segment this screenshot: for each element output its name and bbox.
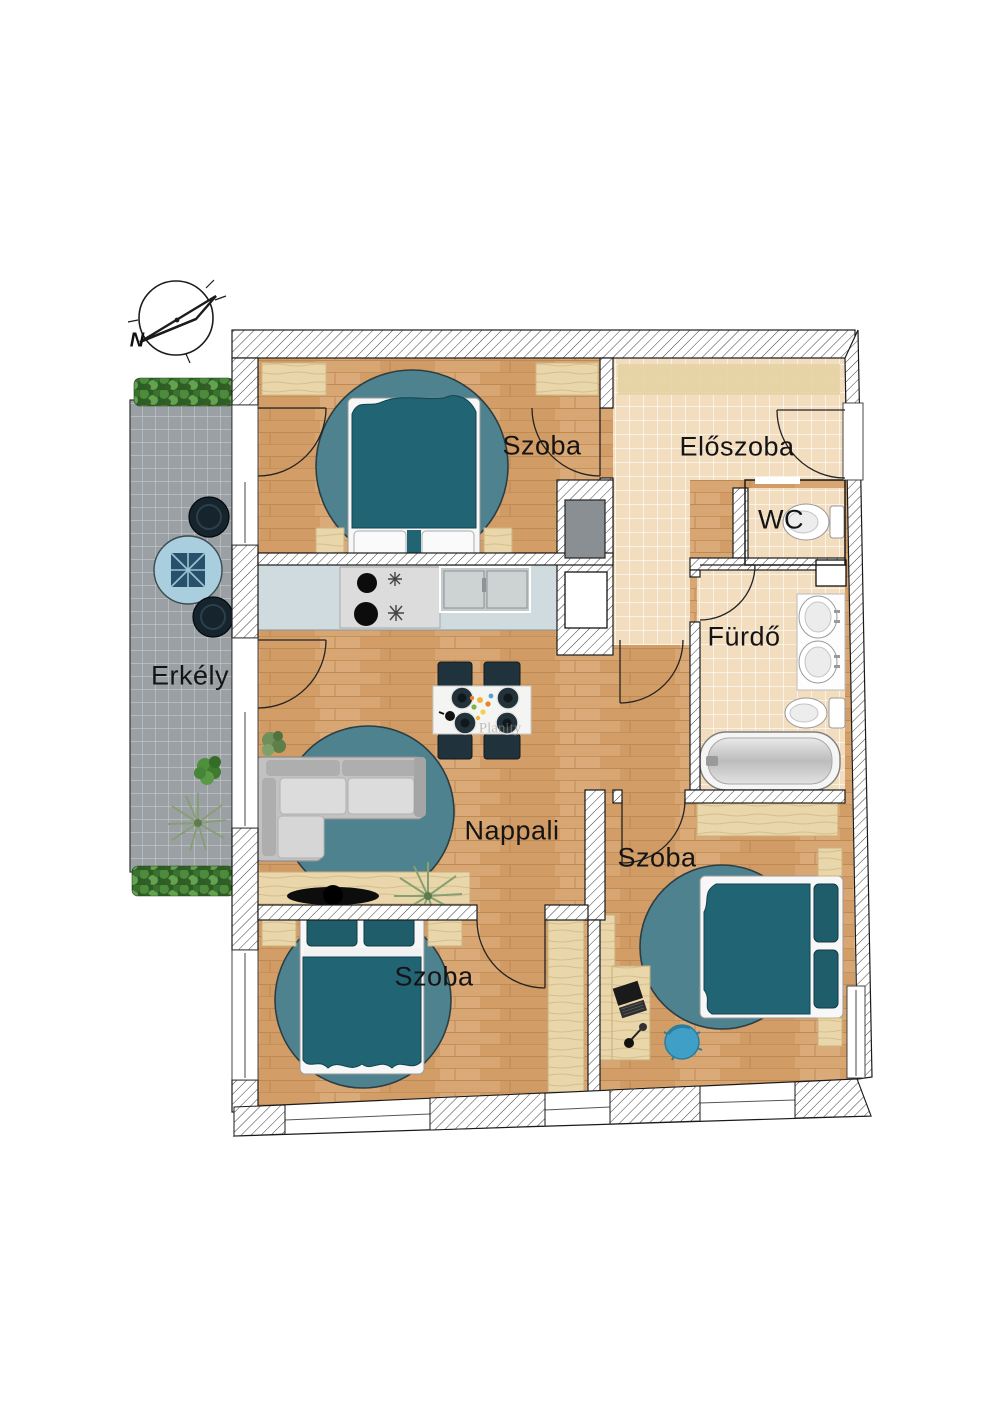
watermark-text: Planity [479, 721, 522, 738]
nightstand [484, 528, 512, 554]
nightstand [316, 528, 344, 554]
hedge-top [134, 378, 234, 406]
balcony-table [154, 536, 222, 604]
dining-chair [438, 734, 472, 759]
dining-chair [438, 662, 472, 687]
nightstand [428, 918, 462, 946]
hedge-bottom [132, 866, 234, 896]
dining-chair [484, 734, 520, 759]
doormat [618, 364, 840, 395]
wardrobe [697, 800, 838, 836]
corridor-floor [613, 480, 690, 645]
kitchen-counter [258, 565, 557, 630]
label-erkely: Erkély [151, 661, 229, 692]
compass-north-label: N [130, 330, 144, 353]
entrance-opening [843, 403, 863, 480]
floor-plan-drawing [0, 0, 1000, 1414]
nightstand [818, 1018, 842, 1046]
nightstand [262, 918, 296, 946]
label-eloszoba: Előszoba [679, 432, 794, 463]
floor-plan-page: Szoba Előszoba WC Fürdő Erkély Nappali S… [0, 0, 1000, 1414]
label-nappali: Nappali [464, 816, 559, 847]
dresser [262, 363, 326, 395]
wardrobe [548, 918, 584, 1092]
balcony-area [130, 378, 234, 896]
bathtub [700, 732, 840, 790]
pillow [814, 950, 838, 1008]
balcony-chair [193, 597, 233, 637]
label-szoba-top: Szoba [502, 431, 581, 462]
sheet [304, 948, 421, 957]
bathtub-faucet [706, 756, 718, 766]
dresser [536, 363, 598, 395]
label-furdo: Fürdő [707, 622, 780, 653]
nightstand [818, 848, 842, 876]
balcony-chair [189, 497, 229, 537]
label-wc: WC [758, 505, 804, 536]
pillow [814, 884, 838, 942]
bed-blanket [704, 884, 810, 1014]
bed-blanket [352, 396, 476, 528]
kitchen-sink [440, 567, 530, 612]
label-szoba-bottom: Szoba [394, 962, 473, 993]
stove [340, 567, 440, 628]
toilet [785, 698, 845, 728]
label-szoba-right: Szoba [617, 843, 696, 874]
dining-chair [484, 662, 520, 687]
